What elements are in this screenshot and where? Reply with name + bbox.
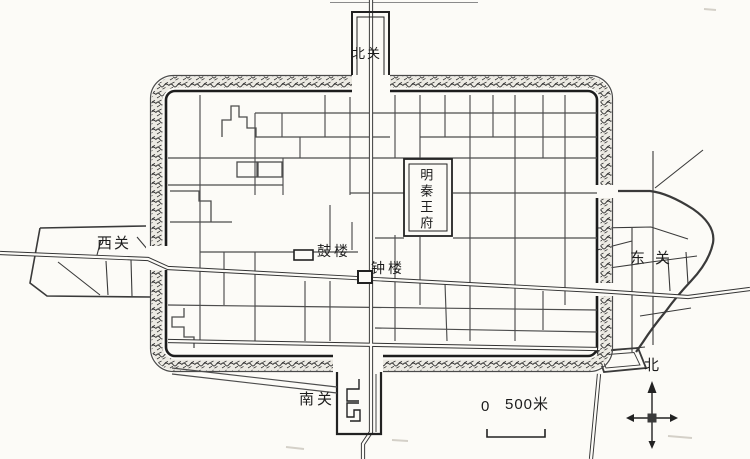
north-guan-label: 北关 [352,47,382,61]
bell-tower-marker [358,271,372,283]
scan-noise [286,3,716,450]
scale-bar-end-label: 500米 [505,397,549,414]
scale-bar-bracket [487,429,545,437]
city-map: 北关 南关 西关 东关 明秦王府 鼓楼 钟楼 北 0 500米 [0,0,750,459]
palace-label: 明秦王府 [418,168,432,232]
east-guan-label: 东关 [630,251,680,268]
south-guan-label: 南关 [299,392,335,409]
map-canvas [0,0,750,459]
compass-north-label: 北 [644,358,659,375]
street-network [168,95,597,348]
block-boundaries [170,106,282,348]
bell-tower-label: 钟楼 [371,261,405,276]
compass-rose-icon [626,381,678,449]
drum-tower-label: 鼓楼 [317,244,351,259]
scale-bar-start-label: 0 [481,399,489,416]
west-guan-label: 西关 [97,236,131,253]
main-roads [0,0,750,459]
west-guan-district [30,226,150,297]
south-guan-enclosure [172,368,381,434]
drum-tower-marker [294,250,313,260]
